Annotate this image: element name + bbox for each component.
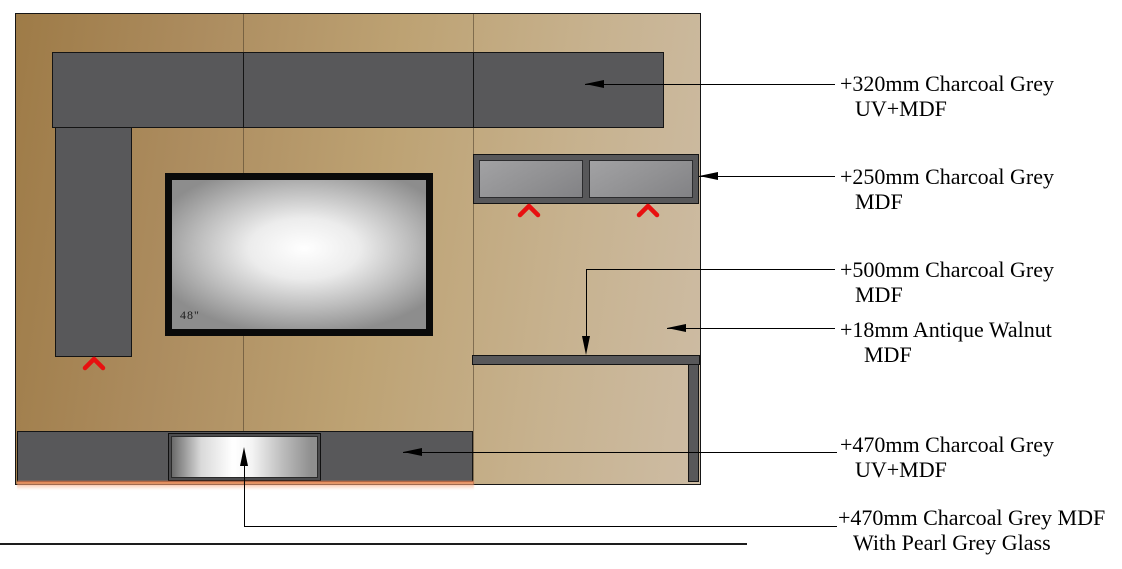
annotation-text: +18mm Antique Walnut — [840, 317, 1052, 342]
leader-line — [585, 84, 835, 85]
annotation-250mm-charcoal-mdf: +250mm Charcoal Grey MDF — [840, 164, 1054, 214]
annotation-text: +250mm Charcoal Grey — [840, 164, 1054, 189]
shelf-panel — [472, 355, 700, 365]
annotation-text: +500mm Charcoal Grey — [840, 257, 1054, 282]
leader-arrowhead-left-icon — [667, 324, 686, 332]
tv-bezel: 48" — [165, 173, 433, 336]
leader-line — [403, 452, 837, 453]
leader-arrowhead-left-icon — [403, 448, 422, 456]
annotation-470mm-charcoal-uv-mdf: +470mm Charcoal Grey UV+MDF — [840, 432, 1054, 482]
annotation-text: MDF — [840, 282, 1054, 307]
panel-joint-line — [473, 53, 474, 127]
leader-line — [244, 526, 837, 527]
annotation-text: With Pearl Grey Glass — [838, 530, 1105, 555]
panel-joint-line — [243, 53, 244, 127]
door-open-chevron-icon — [517, 203, 541, 218]
annotation-text: MDF — [840, 342, 1052, 367]
annotation-text: UV+MDF — [840, 457, 1054, 482]
cabinet-door-right — [589, 160, 693, 198]
door-open-chevron-icon — [82, 356, 106, 371]
floor-line — [0, 543, 747, 545]
annotation-320mm-charcoal-uv-mdf: +320mm Charcoal Grey UV+MDF — [840, 71, 1054, 121]
top-charcoal-panel — [52, 52, 664, 128]
leader-line — [667, 328, 835, 329]
leader-arrowhead-left-icon — [585, 80, 604, 88]
cabinet-door-left — [479, 160, 583, 198]
leader-line — [244, 466, 245, 526]
leader-line — [586, 269, 835, 270]
annotation-18mm-antique-walnut-mdf: +18mm Antique Walnut MDF — [840, 317, 1052, 367]
leader-arrowhead-down-icon — [582, 336, 590, 355]
right-support-panel — [688, 364, 699, 482]
leader-line — [586, 269, 587, 337]
annotation-text: UV+MDF — [840, 96, 1054, 121]
leader-arrowhead-up-icon — [240, 447, 248, 466]
door-open-chevron-icon — [636, 203, 660, 218]
annotation-text: MDF — [840, 189, 1054, 214]
left-charcoal-panel — [55, 127, 132, 357]
annotation-470mm-charcoal-mdf-pearl-glass: +470mm Charcoal Grey MDF With Pearl Grey… — [838, 505, 1105, 555]
wall-cabinet — [473, 154, 699, 204]
annotation-text: +320mm Charcoal Grey — [840, 71, 1054, 96]
led-glow-strip — [17, 481, 474, 490]
tv-screen: 48" — [172, 180, 426, 329]
annotation-text: +470mm Charcoal Grey — [840, 432, 1054, 457]
leader-line — [699, 176, 835, 177]
annotation-text: +470mm Charcoal Grey MDF — [838, 505, 1105, 530]
leader-arrowhead-left-icon — [699, 172, 718, 180]
tv-size-label: 48" — [180, 308, 200, 323]
annotation-500mm-charcoal-mdf: +500mm Charcoal Grey MDF — [840, 257, 1054, 307]
elevation-drawing: 48" — [0, 0, 1122, 569]
